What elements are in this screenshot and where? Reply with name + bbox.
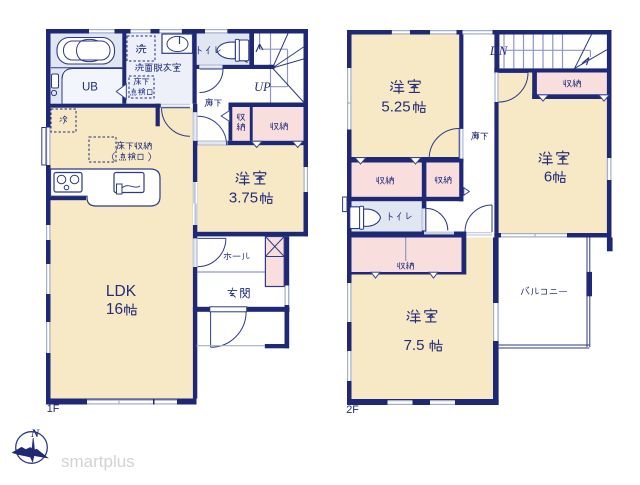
svg-text:LDK: LDK — [106, 283, 137, 300]
svg-text:1F: 1F — [47, 403, 60, 415]
svg-text:16: 16 — [106, 301, 123, 318]
svg-text:3.75: 3.75 — [229, 190, 258, 207]
svg-text:UP: UP — [254, 80, 271, 94]
svg-text:DN: DN — [489, 44, 508, 58]
svg-text:UB: UB — [82, 82, 98, 94]
svg-text:2F: 2F — [346, 404, 359, 416]
svg-text:7.5: 7.5 — [404, 337, 425, 354]
svg-text:6: 6 — [544, 169, 552, 186]
svg-text:5.25: 5.25 — [381, 99, 410, 116]
svg-text:N: N — [30, 428, 40, 440]
svg-text:smartplus: smartplus — [61, 452, 135, 471]
